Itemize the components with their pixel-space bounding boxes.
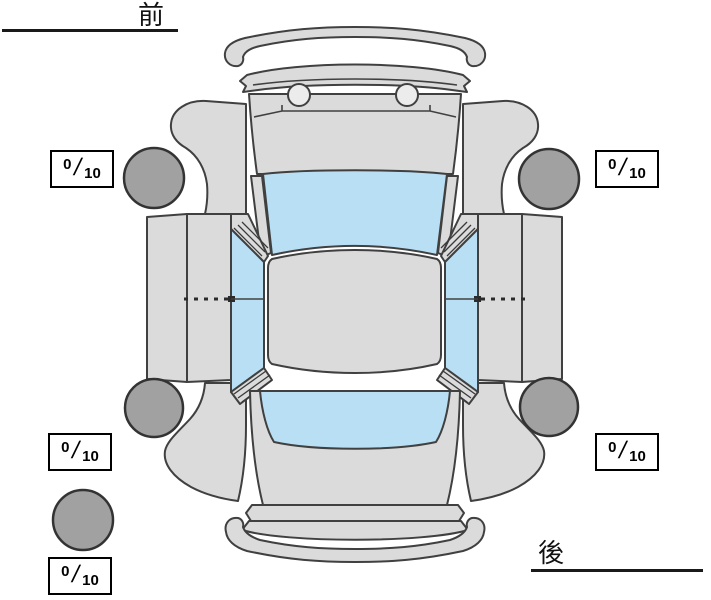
rating-separator: / bbox=[70, 561, 83, 589]
rating-separator: / bbox=[70, 437, 83, 465]
rocker-panel-right bbox=[522, 214, 562, 382]
rating-max: 10 bbox=[629, 448, 646, 465]
trunk-molding-lower bbox=[242, 521, 468, 540]
rating-box-rear-left: 0 / 10 bbox=[48, 433, 112, 471]
rating-value: 0 bbox=[608, 156, 616, 173]
front-label: 前 bbox=[138, 2, 164, 28]
headlight-left bbox=[288, 84, 310, 106]
rating-value: 0 bbox=[63, 156, 71, 173]
front-underline bbox=[2, 29, 178, 32]
rear-underline bbox=[531, 569, 703, 572]
roof-panel bbox=[268, 250, 441, 373]
rating-max: 10 bbox=[82, 448, 99, 465]
rating-value: 0 bbox=[61, 439, 69, 456]
tire-rear-left bbox=[125, 379, 183, 437]
rating-box-rear-right: 0 / 10 bbox=[595, 433, 659, 471]
rating-max: 10 bbox=[82, 572, 99, 589]
rating-separator: / bbox=[72, 154, 85, 182]
rear-label: 後 bbox=[538, 540, 564, 566]
headlight-right bbox=[396, 84, 418, 106]
rating-box-front-left: 0 / 10 bbox=[50, 150, 114, 188]
rating-value: 0 bbox=[61, 563, 69, 580]
windshield-glass bbox=[263, 170, 447, 255]
tire-spare bbox=[53, 490, 113, 550]
vehicle-condition-diagram: 前 後 0 / 10 0 / 10 0 / 10 0 / 10 0 / 10 bbox=[0, 0, 711, 600]
rocker-panel-left bbox=[147, 214, 187, 382]
rating-box-spare: 0 / 10 bbox=[48, 557, 112, 595]
rating-separator: / bbox=[617, 437, 630, 465]
front-bumper bbox=[225, 27, 485, 66]
rating-box-front-right: 0 / 10 bbox=[595, 150, 659, 188]
rating-max: 10 bbox=[84, 165, 101, 182]
rating-max: 10 bbox=[629, 165, 646, 182]
car-top-view bbox=[0, 0, 711, 600]
tire-rear-right bbox=[520, 378, 578, 436]
rating-value: 0 bbox=[608, 439, 616, 456]
tire-front-right bbox=[519, 149, 579, 209]
rear-window-glass bbox=[260, 391, 450, 449]
quarter-panel-front-left bbox=[171, 101, 246, 214]
trunk-molding-upper bbox=[246, 505, 464, 521]
rating-separator: / bbox=[617, 154, 630, 182]
tire-front-left bbox=[124, 148, 184, 208]
